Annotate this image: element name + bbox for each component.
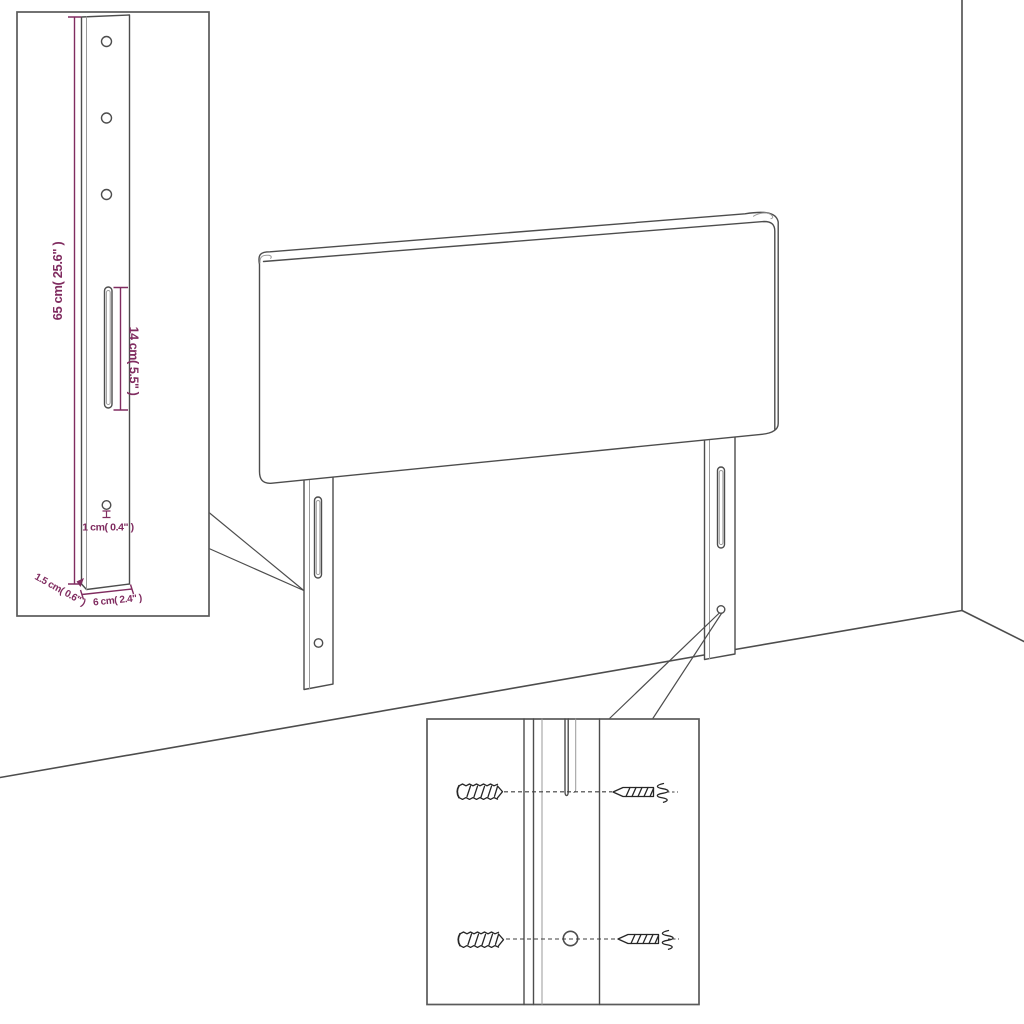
hardware-callout-line-left	[609, 613, 719, 719]
floor-wall-line-mid	[735, 611, 962, 650]
dim-height-label: 65 cm( 25.6" )	[50, 242, 65, 321]
dim-slot-label: 14 cm( 5.5" )	[127, 327, 141, 396]
hardware-callout-line-right	[653, 613, 722, 719]
inset-callout-line-upper	[209, 513, 304, 591]
floor-corner-line-right	[962, 611, 1024, 642]
left-leg-body	[304, 468, 333, 690]
inset-leg-body	[82, 15, 130, 590]
dim-hole-label: 1 cm( 0.4" )	[82, 521, 134, 533]
headboard-panel	[259, 212, 778, 483]
hardware-inset	[427, 719, 699, 1005]
inset-leg-drawing	[82, 15, 130, 590]
diagram-canvas: 65 cm( 25.6" ) 14 cm( 5.5" ) 1 cm( 0.4" …	[0, 0, 1024, 1024]
leg-detail-inset: 65 cm( 25.6" ) 14 cm( 5.5" ) 1 cm( 0.4" …	[17, 12, 209, 616]
panel-face	[259, 212, 778, 483]
headboard-assembly-diagram: 65 cm( 25.6" ) 14 cm( 5.5" ) 1 cm( 0.4" …	[0, 0, 1024, 1024]
left-leg	[304, 468, 333, 690]
callout-lines	[209, 513, 722, 720]
inset-callout-line-lower	[209, 549, 304, 591]
hardware-inset-border	[427, 719, 699, 1005]
